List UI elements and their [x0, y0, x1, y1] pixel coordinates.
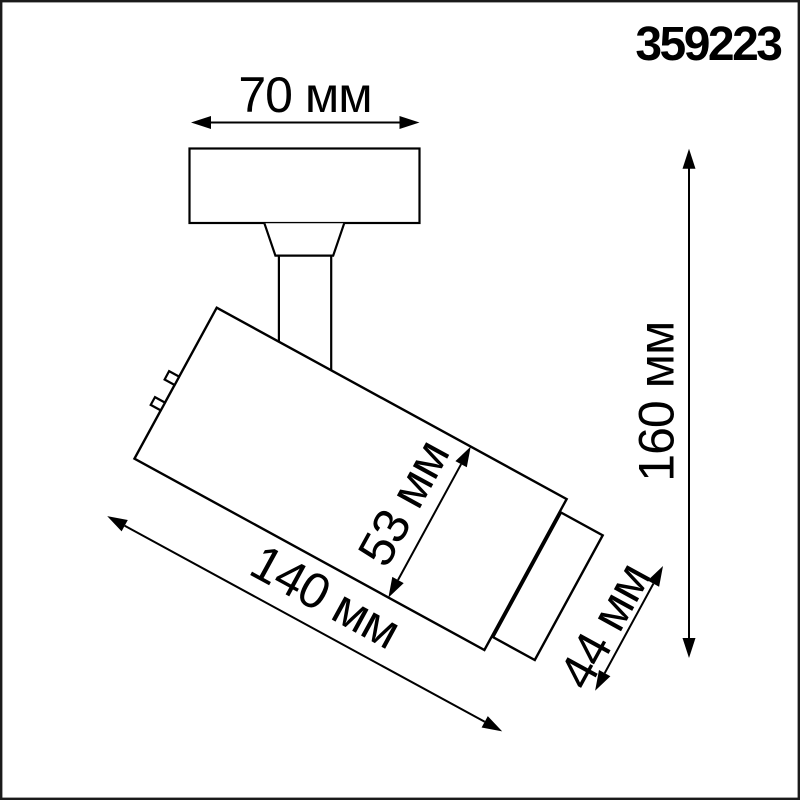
- svg-text:70 мм: 70 мм: [238, 67, 371, 123]
- svg-text:359223: 359223: [635, 18, 781, 71]
- svg-text:160 мм: 160 мм: [629, 322, 685, 482]
